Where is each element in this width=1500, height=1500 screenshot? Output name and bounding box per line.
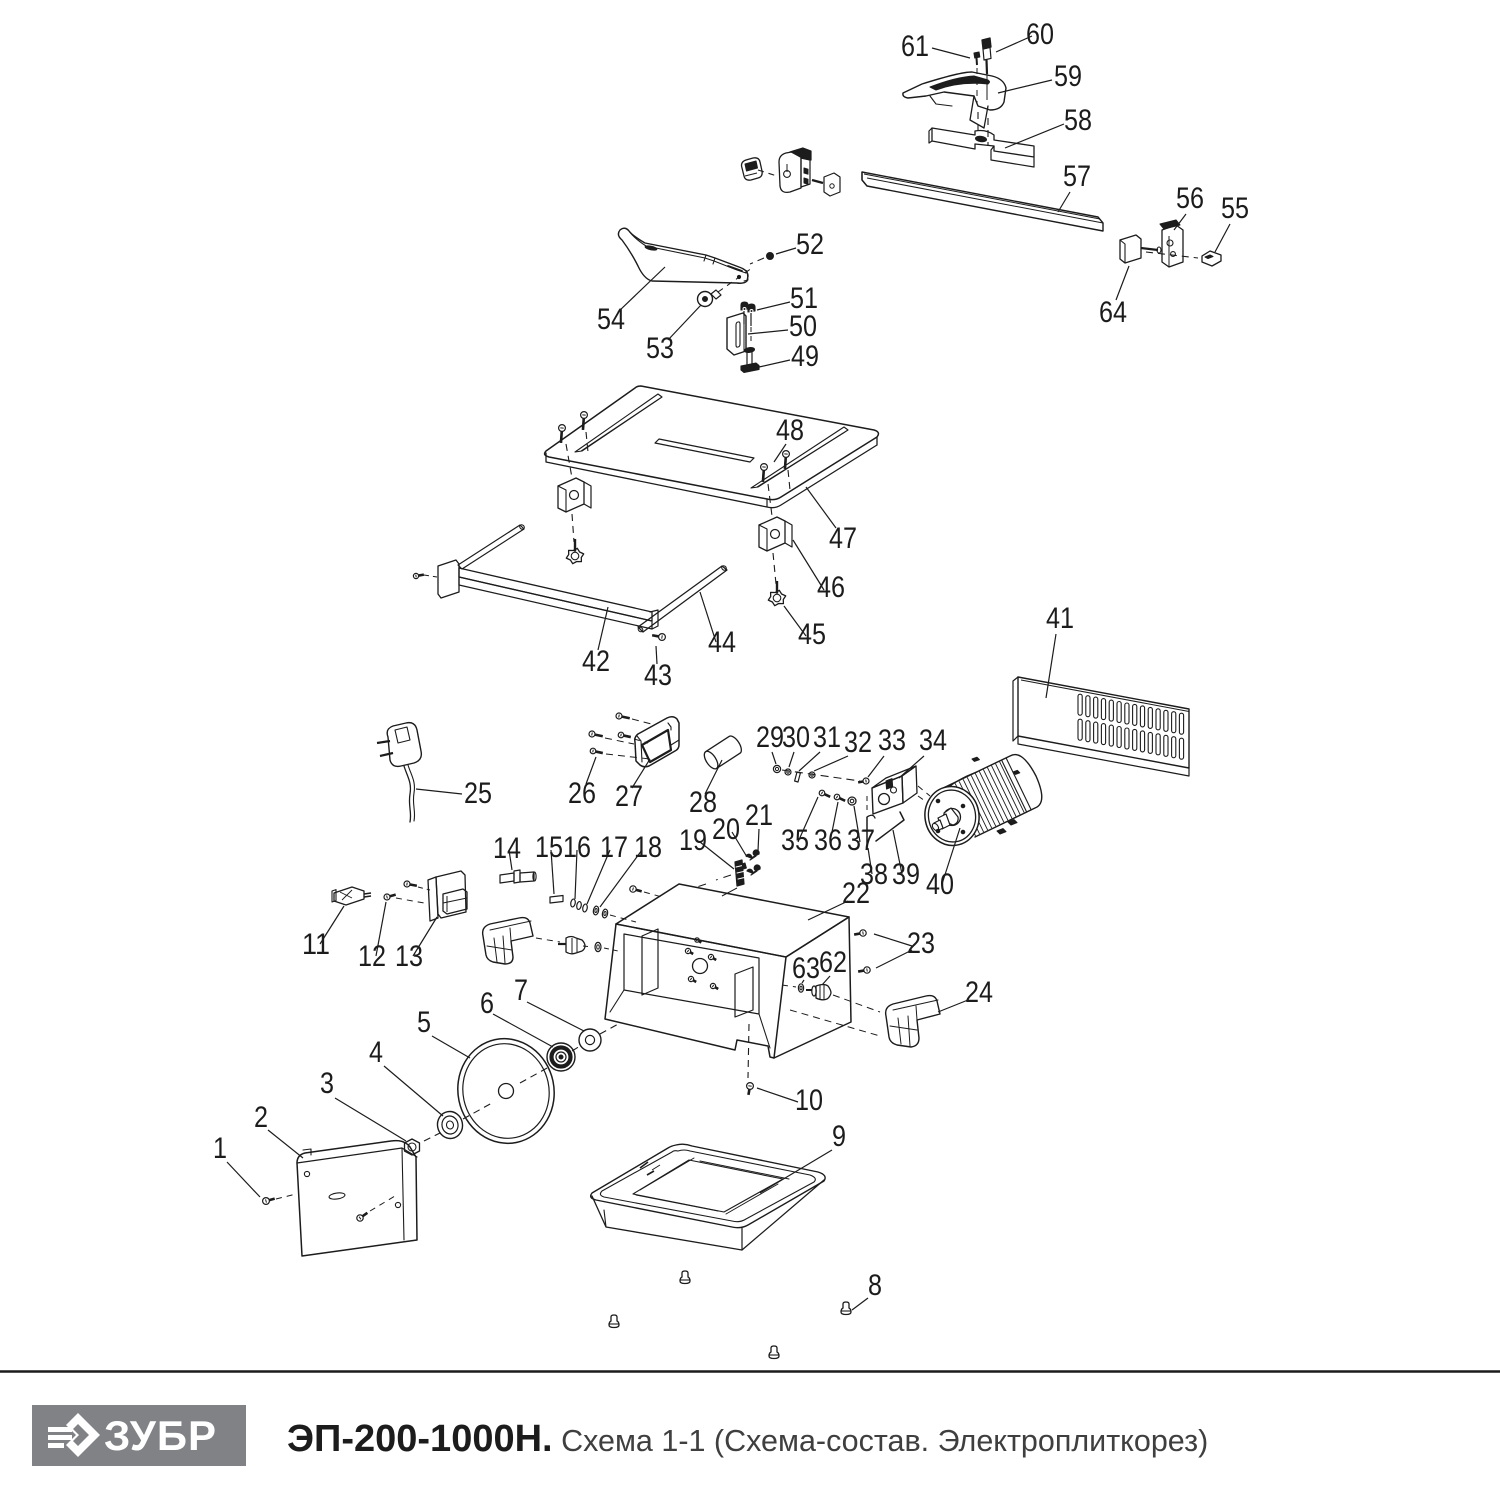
svg-text:36: 36 (814, 824, 842, 857)
svg-text:5: 5 (417, 1006, 431, 1039)
svg-text:46: 46 (817, 571, 845, 604)
svg-text:13: 13 (395, 940, 423, 973)
svg-text:31: 31 (813, 721, 841, 754)
svg-text:34: 34 (919, 724, 947, 757)
svg-text:15: 15 (535, 831, 563, 864)
svg-text:47: 47 (829, 522, 857, 555)
svg-text:57: 57 (1063, 160, 1091, 193)
svg-text:24: 24 (965, 976, 993, 1009)
svg-text:37: 37 (847, 824, 875, 857)
svg-text:25: 25 (464, 777, 492, 810)
svg-text:32: 32 (844, 726, 872, 759)
svg-text:26: 26 (568, 777, 596, 810)
svg-text:53: 53 (646, 332, 674, 365)
svg-text:1: 1 (213, 1132, 227, 1165)
svg-text:42: 42 (582, 645, 610, 678)
svg-text:6: 6 (480, 987, 494, 1020)
svg-text:20: 20 (712, 813, 740, 846)
svg-text:61: 61 (901, 30, 929, 63)
svg-text:22: 22 (842, 877, 870, 910)
svg-text:64: 64 (1099, 296, 1127, 329)
svg-text:55: 55 (1221, 192, 1249, 225)
svg-text:39: 39 (892, 858, 920, 891)
svg-text:62: 62 (819, 946, 847, 979)
svg-text:23: 23 (907, 927, 935, 960)
svg-text:11: 11 (302, 928, 330, 961)
svg-text:63: 63 (792, 952, 820, 985)
svg-text:35: 35 (781, 824, 809, 857)
svg-text:50: 50 (789, 310, 817, 343)
svg-text:54: 54 (597, 303, 625, 336)
svg-text:ЗУБР: ЗУБР (104, 1412, 217, 1459)
svg-text:8: 8 (868, 1269, 882, 1302)
svg-text:7: 7 (514, 974, 528, 1007)
svg-text:48: 48 (776, 414, 804, 447)
svg-text:41: 41 (1046, 602, 1074, 635)
svg-text:19: 19 (679, 824, 707, 857)
svg-text:40: 40 (926, 868, 954, 901)
svg-text:27: 27 (615, 780, 643, 813)
svg-text:12: 12 (358, 940, 386, 973)
svg-text:33: 33 (878, 724, 906, 757)
svg-text:10: 10 (795, 1084, 823, 1117)
svg-text:2: 2 (254, 1101, 268, 1134)
svg-text:43: 43 (644, 659, 672, 692)
svg-text:4: 4 (369, 1036, 383, 1069)
svg-text:58: 58 (1064, 104, 1092, 137)
svg-text:14: 14 (493, 832, 521, 865)
svg-text:60: 60 (1026, 18, 1054, 51)
svg-text:30: 30 (782, 721, 810, 754)
svg-text:59: 59 (1054, 60, 1082, 93)
svg-text:3: 3 (320, 1067, 334, 1100)
svg-text:18: 18 (634, 831, 662, 864)
svg-text:52: 52 (796, 228, 824, 261)
svg-text:29: 29 (756, 721, 784, 754)
svg-text:56: 56 (1176, 182, 1204, 215)
svg-text:ЭП-200-1000Н. Схема 1-1 (Схема: ЭП-200-1000Н. Схема 1-1 (Схема-состав. Э… (287, 1418, 1208, 1460)
svg-text:49: 49 (791, 340, 819, 373)
svg-text:45: 45 (798, 618, 826, 651)
svg-text:17: 17 (600, 831, 628, 864)
svg-text:9: 9 (832, 1120, 846, 1153)
svg-text:21: 21 (745, 799, 773, 832)
